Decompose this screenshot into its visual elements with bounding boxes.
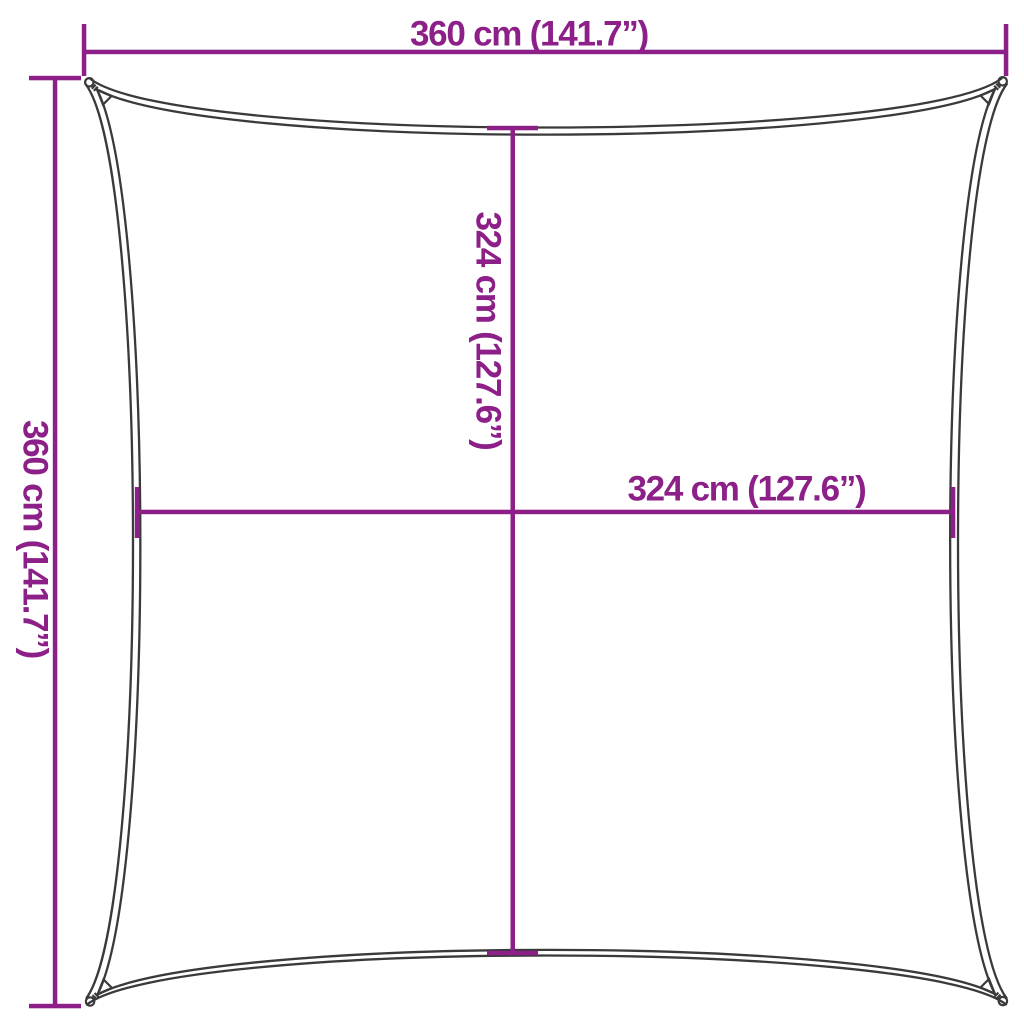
svg-text:324 cm (127.6”): 324 cm (127.6”) <box>469 211 508 449</box>
svg-text:360 cm (141.7”): 360 cm (141.7”) <box>16 420 55 658</box>
svg-text:360 cm (141.7”): 360 cm (141.7”) <box>410 15 648 54</box>
svg-text:324 cm (127.6”): 324 cm (127.6”) <box>627 470 865 509</box>
